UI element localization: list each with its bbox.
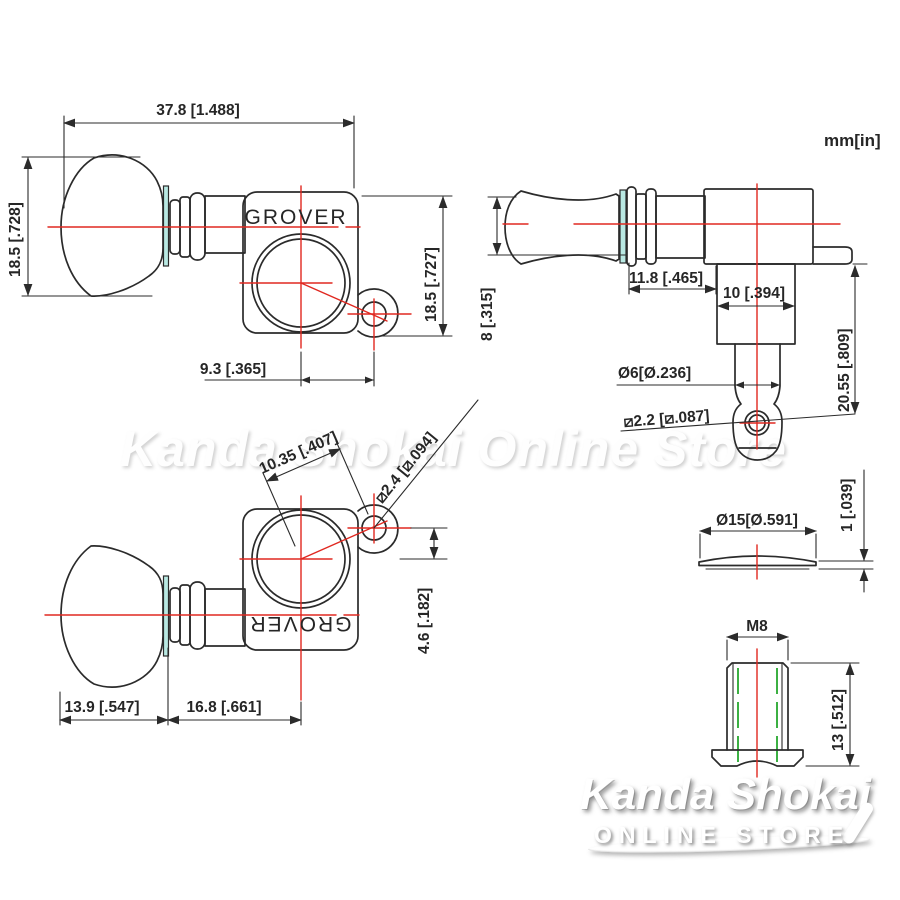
mount-tab-side	[813, 247, 852, 264]
button-joint-seal	[164, 186, 169, 266]
housing-side	[704, 189, 813, 264]
dim-washer-diameter: Ø15[Ø.591]	[700, 512, 816, 558]
dim-shaft-to-center: 16.8 [.661]	[168, 699, 301, 720]
dim-body-height: 18.5 [.727]	[362, 196, 452, 336]
mount-tab	[358, 289, 398, 337]
dim-screw-hole-diameter-label: ⧄2.4 [⧄.094]	[372, 429, 440, 506]
units-label: mm[in]	[824, 131, 881, 150]
button-outline	[61, 155, 163, 296]
collar-ring-side-3	[646, 189, 656, 264]
dim-diagonal-offset-label: 10.35 [.407]	[257, 428, 340, 477]
dim-collar-width-label: 10 [.394]	[723, 285, 785, 302]
brand-logo-front: GROVER	[244, 206, 347, 229]
tuner-front-geometry	[61, 155, 398, 337]
dim-washer-thickness: 1 [.039]	[819, 470, 873, 592]
button-side-outline	[505, 191, 619, 264]
dim-string-hole-diameter-label: ⧄2.2 [⧄.087]	[623, 407, 710, 431]
tuner-back-geometry	[61, 505, 398, 687]
dim-post-length-label: 20.55 [.809]	[836, 328, 853, 412]
dim-bushing-thread-label: M8	[746, 618, 768, 635]
front-bottom-centerlines	[45, 494, 411, 700]
dim-body-height-label: 18.5 [.727]	[423, 247, 440, 322]
threaded-collar	[717, 264, 795, 344]
dim-post-diameter: Ø6[Ø.236]	[617, 365, 780, 389]
dim-shaft-length: 11.8 [.465]	[629, 263, 716, 294]
shaft-side	[656, 196, 705, 258]
brand-logo-back: GROVER	[248, 612, 351, 635]
bushing-geometry	[712, 649, 803, 777]
dim-screw-offset-y: 4.6 [.182]	[400, 528, 447, 654]
dim-shaft-to-center-label: 16.8 [.661]	[187, 699, 262, 716]
dim-collar-width: 10 [.394]	[718, 285, 794, 306]
dim-button-height-label: 18.5 [.728]	[7, 202, 24, 277]
dim-washer-thickness-label: 1 [.039]	[839, 479, 856, 532]
collar-ring-side-2	[636, 194, 646, 259]
button-joint-seal-side	[620, 190, 626, 263]
dim-post-length: 20.55 [.809]	[836, 264, 867, 413]
dim-button-thickness: 8 [.315]	[479, 197, 627, 341]
store-logo-subtitle: ONLINE STORE	[594, 822, 880, 849]
shaft	[205, 196, 245, 253]
dim-string-hole-diameter: ⧄2.2 [⧄.087]	[621, 407, 855, 431]
dim-bushing-height-label: 13 [.512]	[830, 689, 847, 751]
dim-shaft-length-label: 11.8 [.465]	[629, 270, 703, 287]
dim-button-thickness-label: 8 [.315]	[479, 288, 496, 341]
dim-post-diameter-label: Ø6[Ø.236]	[618, 365, 691, 382]
collar-ring-side-1	[627, 187, 636, 266]
washer-geometry	[699, 545, 816, 579]
store-logo: Kanda Shokai ONLINE STORE	[580, 772, 880, 849]
technical-drawing: GROVER 37.8 [1.488] 18.5 [.728] 18.5 [.7…	[0, 0, 900, 900]
store-logo-title: Kanda Shokai	[580, 772, 880, 818]
dim-button-length-label: 13.9 [.547]	[65, 699, 140, 716]
dim-screw-offset-y-label: 4.6 [.182]	[416, 588, 433, 654]
dim-screw-offset-x: 9.3 [.365]	[200, 352, 374, 386]
dim-total-width-label: 37.8 [1.488]	[156, 102, 240, 119]
dim-button-length: 13.9 [.547]	[60, 648, 301, 725]
dim-screw-offset-x-label: 9.3 [.365]	[200, 361, 266, 378]
dim-washer-diameter-label: Ø15[Ø.591]	[716, 512, 798, 529]
